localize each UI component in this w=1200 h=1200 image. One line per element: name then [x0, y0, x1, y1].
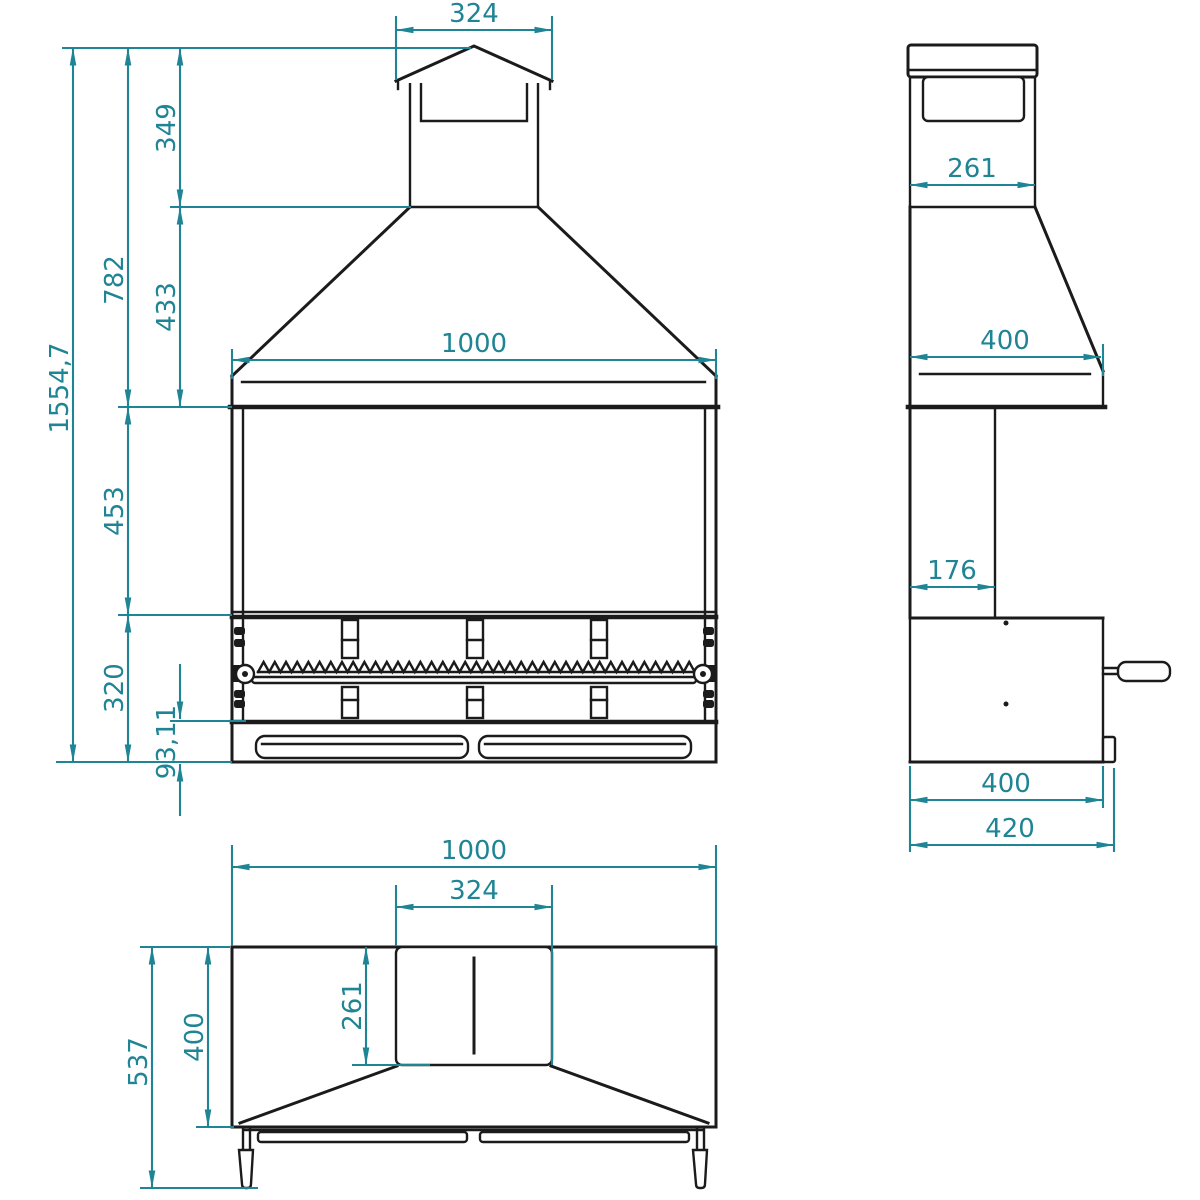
- dim-side-duct-depth: 261: [910, 154, 1035, 185]
- dim-label-top-hood-depth: 400: [180, 1012, 210, 1062]
- dim-label-side-column-depth: 176: [927, 556, 977, 586]
- front-hood: [230, 207, 718, 407]
- dim-label-front-total-height: 1554,7: [45, 343, 75, 434]
- front-drawer-band: [232, 722, 716, 762]
- dim-label-side-firebox-depth: 400: [981, 769, 1031, 799]
- dim-top-total-depth: 537: [124, 947, 154, 1188]
- front-view: [230, 44, 718, 762]
- top-foot-right: [693, 1127, 707, 1188]
- top-view: [232, 947, 716, 1188]
- skewer-handle: [1103, 662, 1170, 681]
- dim-side-hood-depth: 400: [910, 326, 1103, 376]
- dim-front-width: 1000: [232, 329, 716, 360]
- dim-top-chimney-width: 324: [396, 876, 552, 907]
- dim-front-drawer-height: 93,11: [152, 664, 182, 816]
- dim-top-hood-depth: 400: [180, 947, 210, 1127]
- skewer-teeth: [258, 662, 695, 672]
- dim-label-side-duct-depth: 261: [947, 154, 997, 184]
- dim-front-cap-width: 324: [396, 0, 552, 30]
- dim-front-total-height: 1554,7: [45, 48, 75, 762]
- dim-front-chamber-height: 453: [100, 407, 130, 615]
- dim-front-cap-and-hood-height: 782: [100, 48, 130, 407]
- dim-front-cap-height: 349: [152, 48, 182, 207]
- dim-front-hood-height: 433: [152, 207, 182, 407]
- top-drawer-band: [245, 1130, 702, 1142]
- skewer-bar: [232, 662, 716, 683]
- side-firebox: [910, 618, 1170, 762]
- dim-label-front-cap-width: 324: [449, 0, 499, 29]
- side-foot: [1103, 737, 1115, 762]
- dim-label-front-chamber-height: 453: [100, 486, 130, 536]
- dim-label-top-chimney-width: 324: [449, 876, 499, 906]
- dim-label-front-cap-height: 349: [152, 103, 182, 153]
- dim-label-top-width: 1000: [441, 836, 507, 866]
- dim-label-top-total-depth: 537: [124, 1037, 154, 1087]
- dim-label-front-hood-height: 433: [152, 282, 182, 332]
- dim-side-column-depth: 176: [910, 556, 995, 587]
- dim-label-top-chimney-depth: 261: [338, 981, 368, 1031]
- dim-label-front-grill-height: 320: [100, 663, 130, 713]
- technical-drawing-page: 324 1000 349 433 782 1554,7 453 320: [0, 0, 1200, 1200]
- dim-label-front-upper-height: 782: [100, 255, 130, 305]
- dim-label-side-hood-depth: 400: [980, 326, 1030, 356]
- top-foot-left: [239, 1127, 253, 1188]
- side-view: [908, 45, 1170, 762]
- side-hood: [908, 207, 1105, 407]
- dim-label-front-drawer-height: 93,11: [152, 705, 182, 779]
- dim-top-width: 1000: [232, 836, 716, 867]
- drawer-handle-left: [256, 736, 468, 758]
- front-chimney-cap: [391, 44, 557, 207]
- side-dimensions: 261 400 176 400 420: [910, 154, 1114, 852]
- dim-front-grill-section-height: 320: [100, 615, 130, 762]
- dim-label-front-width: 1000: [441, 329, 507, 359]
- drawer-handle-right: [479, 736, 691, 758]
- dim-label-side-total-depth: 420: [985, 814, 1035, 844]
- bbq-technical-drawing: 324 1000 349 433 782 1554,7 453 320: [0, 0, 1200, 1200]
